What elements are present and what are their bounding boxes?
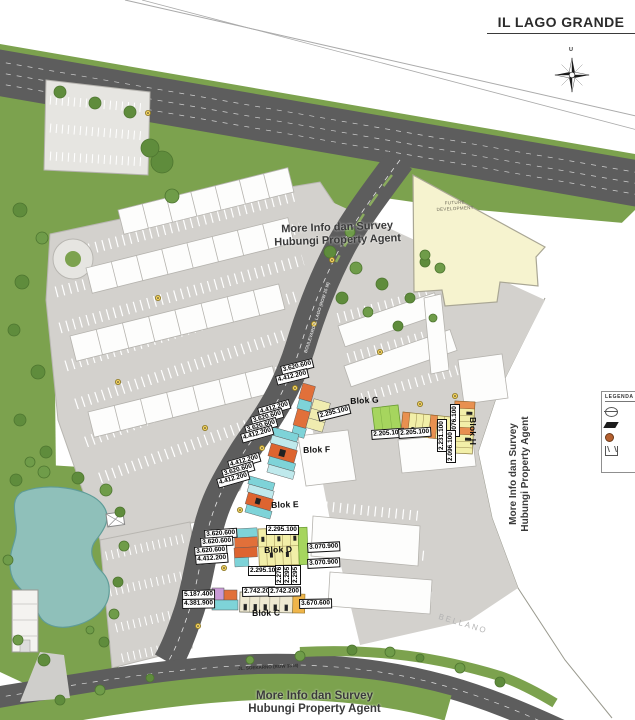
price-label: 2.295 (291, 565, 301, 585)
price-label: 2.295.100 (266, 525, 299, 535)
compass-north-label: U (569, 47, 573, 53)
block-label-e: Blok E (271, 499, 299, 510)
agent-watermark-bottom: More Info dan Survey Hubungi Property Ag… (222, 690, 407, 716)
block-label-g: Blok G (350, 395, 379, 406)
legend-title: LEGENDA (605, 394, 635, 402)
price-label: 2.096.100 (446, 430, 456, 463)
page-title: IL LAGO GRANDE (487, 14, 635, 34)
legend-gate-icon (605, 446, 618, 456)
legend-roundabout-icon (605, 407, 618, 417)
block-label-c: Blok C (252, 608, 280, 618)
block-label-d: Blok D (264, 544, 292, 555)
block-label-f: Blok F (303, 444, 331, 455)
site-plan-drawing (0, 0, 635, 720)
price-label: 3.670.600 (299, 598, 332, 608)
agent-watermark-mid: More Info dan Survey Hubungi Property Ag… (262, 219, 413, 250)
price-label: 4.381.900 (182, 598, 215, 608)
legend-street-icon (603, 422, 618, 428)
price-label: 2.742.200 (268, 586, 301, 596)
compass-rose-icon (553, 55, 591, 95)
price-label: 3.070.900 (307, 541, 340, 552)
agent-watermark-right: More Info dan Survey Hubungi Property Ag… (508, 408, 531, 540)
site-plan-page: IL LAGO GRANDE U More Info dan Survey Hu… (0, 0, 635, 720)
legend: LEGENDA (601, 391, 635, 473)
legend-lamp-icon (605, 433, 614, 442)
block-label-h: Blok H (468, 417, 478, 445)
price-label: 3.070.900 (307, 557, 340, 568)
